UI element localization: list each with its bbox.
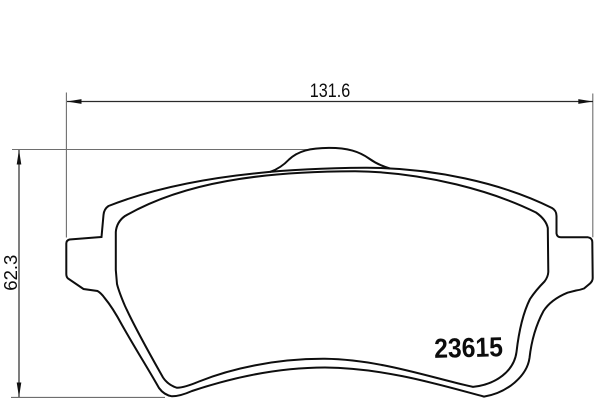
- svg-text:131.6: 131.6: [310, 80, 351, 102]
- svg-text:23615: 23615: [434, 331, 504, 364]
- svg-text:62.3: 62.3: [0, 255, 21, 291]
